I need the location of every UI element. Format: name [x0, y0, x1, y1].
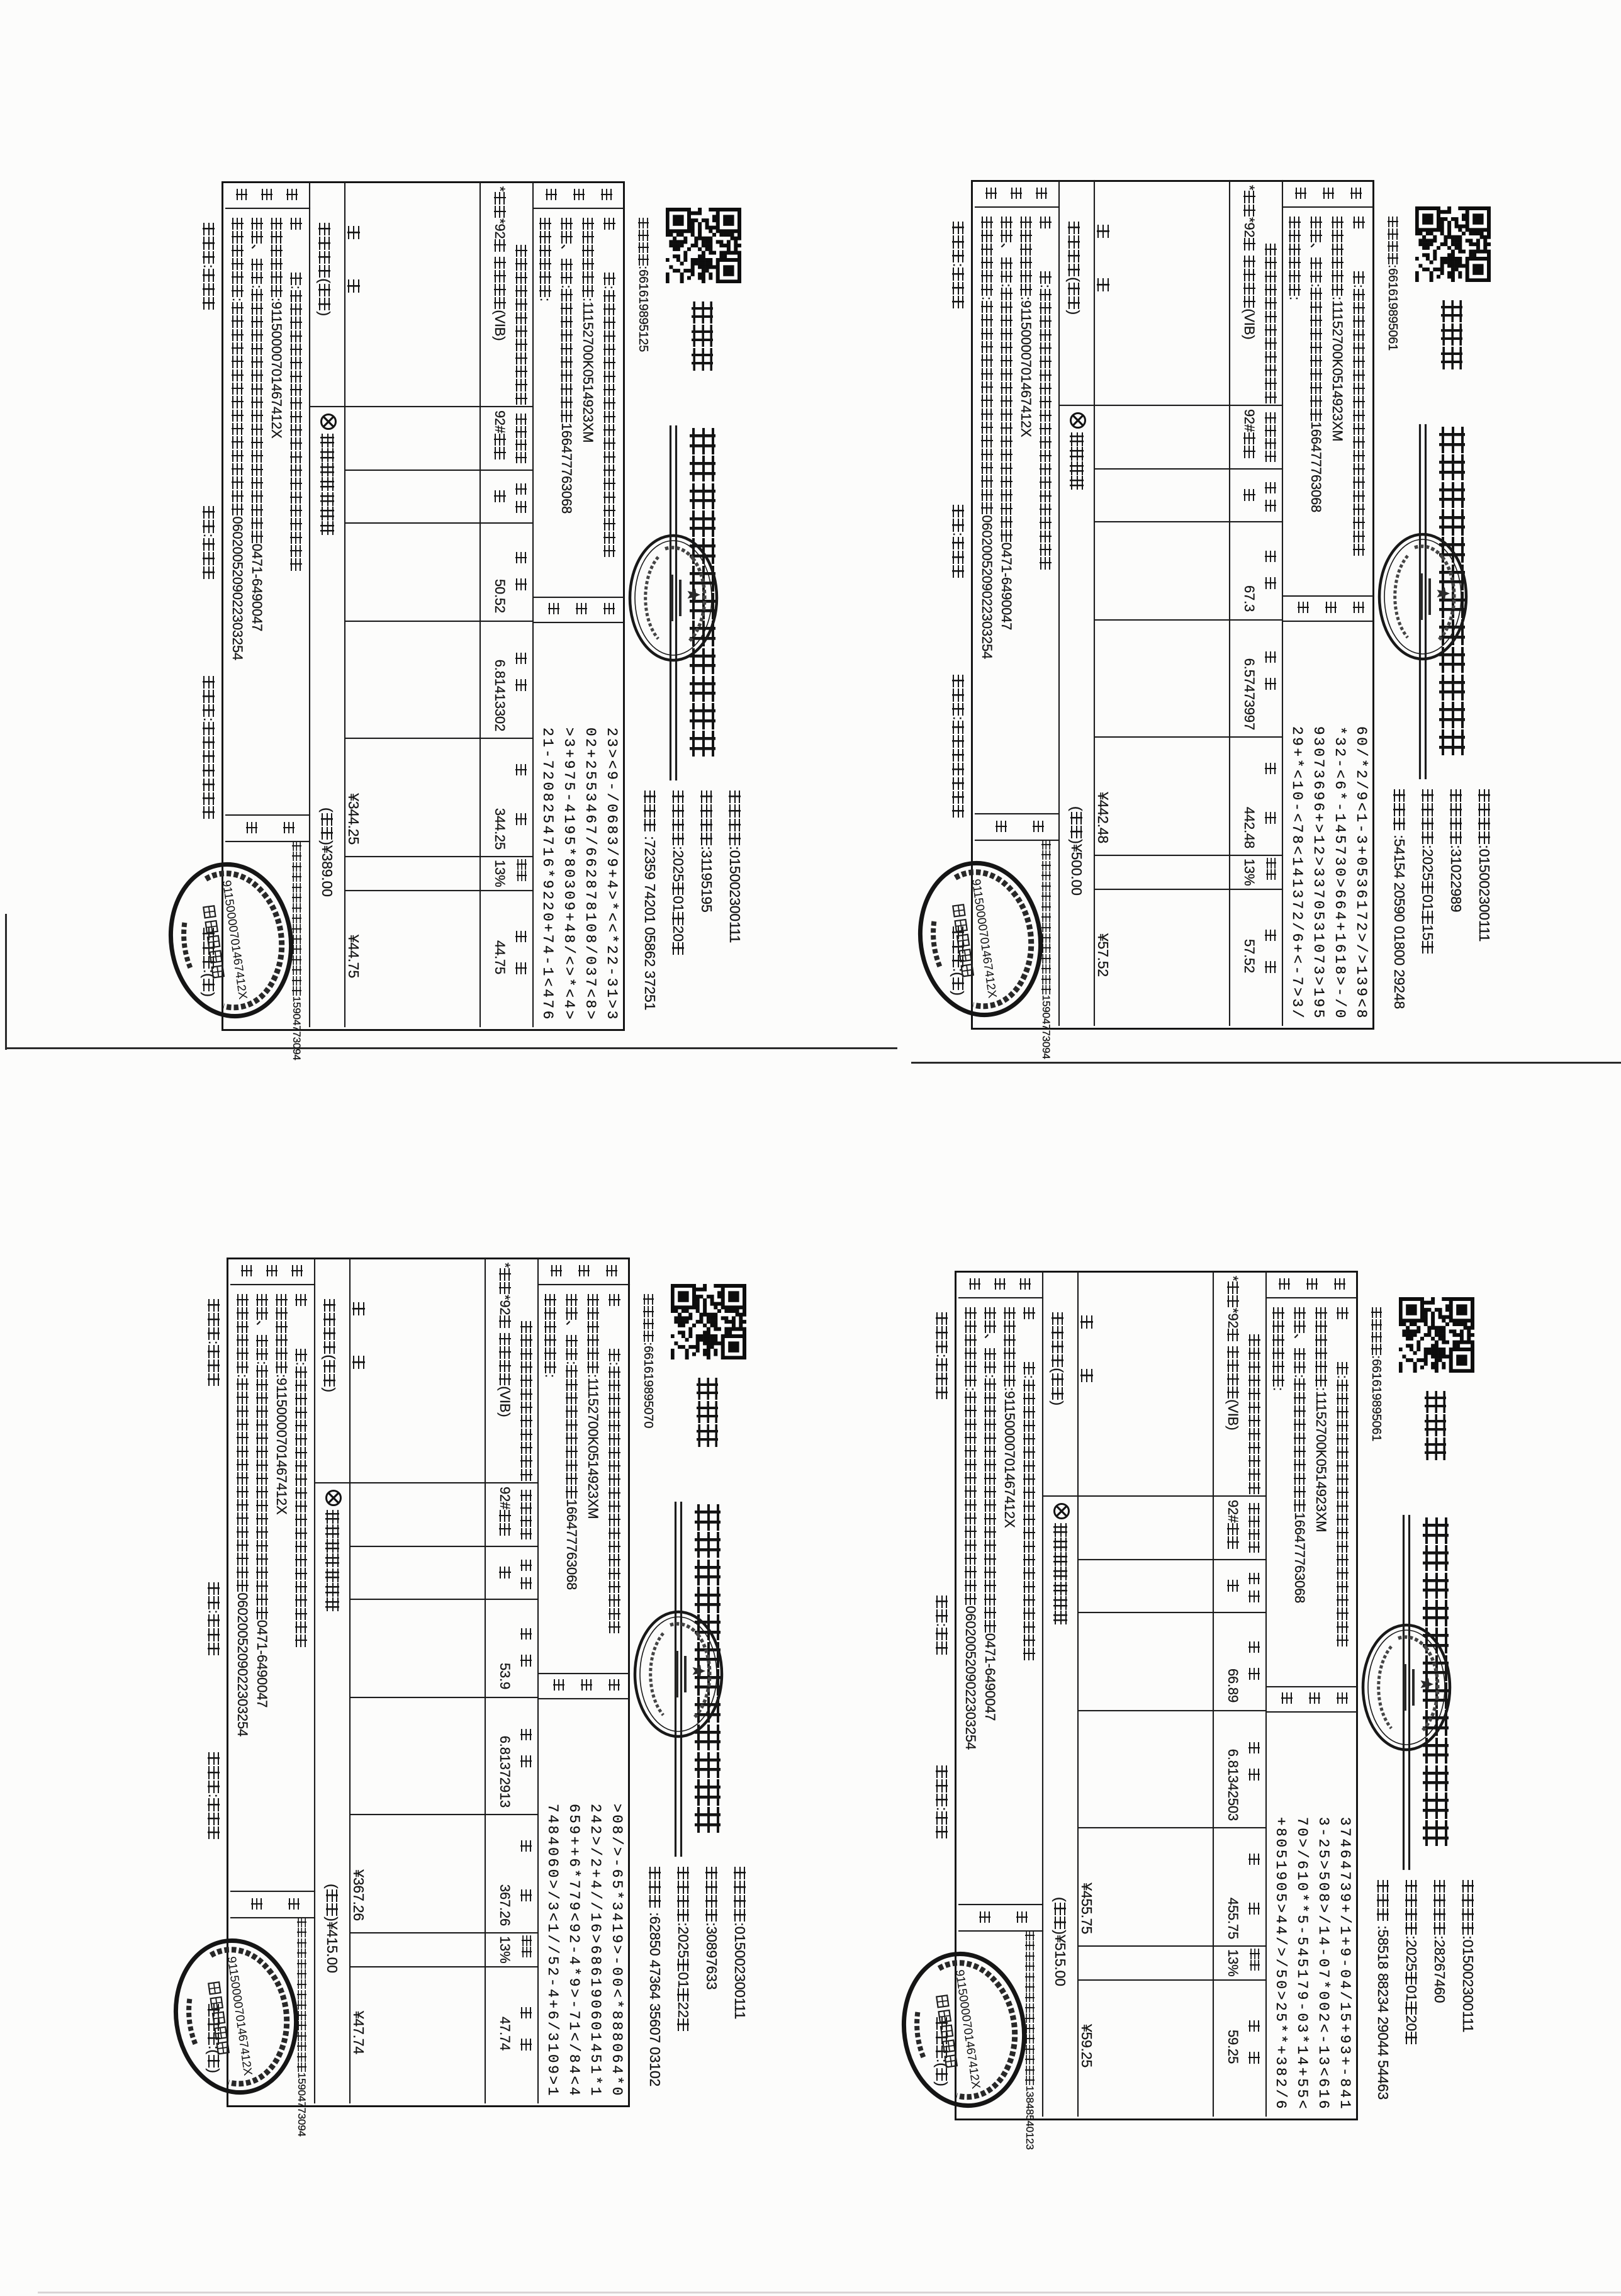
svg-text:91150000701467412X: 91150000701467412X	[225, 1956, 254, 2076]
svg-text:91150000701467412X: 91150000701467412X	[969, 878, 999, 999]
svg-text:91150000701467412X: 91150000701467412X	[953, 1969, 982, 2090]
svg-text:91150000701467412X: 91150000701467412X	[220, 879, 249, 1000]
